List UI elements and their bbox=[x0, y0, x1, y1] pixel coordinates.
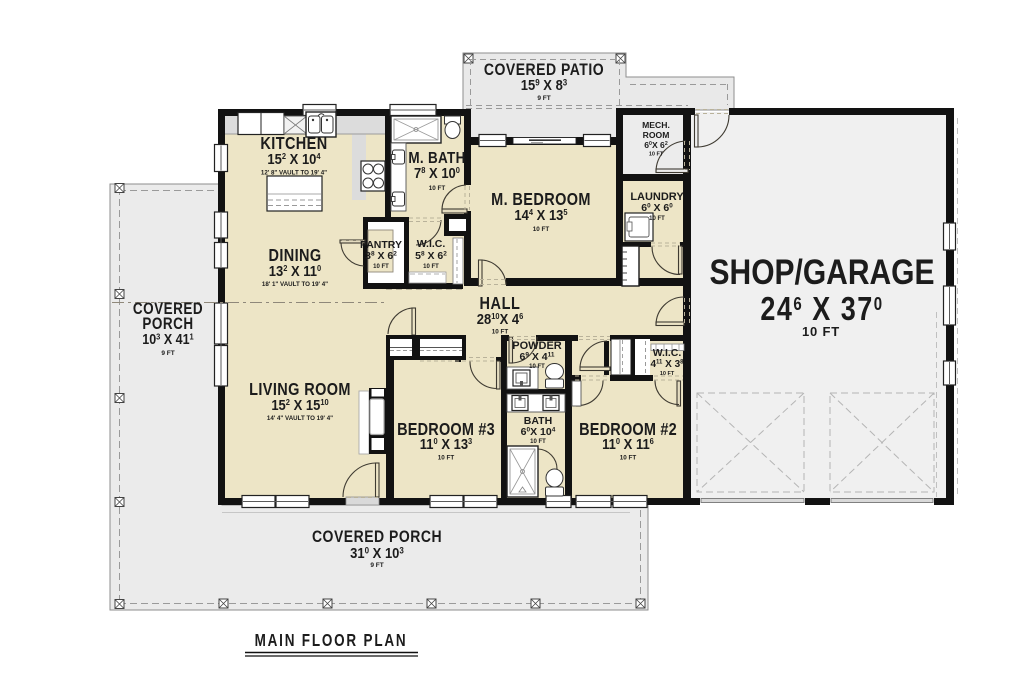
svg-text:10 FT: 10 FT bbox=[802, 324, 840, 339]
svg-text:144 X 135: 144 X 135 bbox=[514, 206, 568, 223]
svg-text:10 FT: 10 FT bbox=[649, 216, 665, 222]
svg-text:159 X 83: 159 X 83 bbox=[521, 76, 568, 93]
svg-text:MECH.: MECH. bbox=[642, 120, 670, 130]
svg-text:411 X 38: 411 X 38 bbox=[650, 359, 684, 370]
svg-text:10 FT: 10 FT bbox=[660, 371, 675, 377]
svg-text:2810X 46: 2810X 46 bbox=[477, 310, 524, 327]
svg-text:10 FT: 10 FT bbox=[529, 364, 545, 370]
svg-text:10 FT: 10 FT bbox=[373, 264, 389, 270]
svg-text:10 FT: 10 FT bbox=[620, 455, 637, 462]
svg-text:10 FT: 10 FT bbox=[438, 455, 455, 462]
svg-text:152 X 104: 152 X 104 bbox=[267, 150, 321, 167]
svg-text:60X 62: 60X 62 bbox=[644, 140, 668, 150]
svg-text:10 FT: 10 FT bbox=[429, 185, 446, 192]
svg-text:14' 4" VAULT TO 19' 4": 14' 4" VAULT TO 19' 4" bbox=[267, 415, 333, 422]
svg-text:310 X 103: 310 X 103 bbox=[350, 544, 404, 561]
svg-text:9 FT: 9 FT bbox=[537, 95, 550, 102]
svg-text:9 FT: 9 FT bbox=[161, 350, 174, 357]
svg-text:MAIN FLOOR PLAN: MAIN FLOOR PLAN bbox=[255, 631, 408, 650]
svg-text:103 X 411: 103 X 411 bbox=[142, 331, 194, 347]
svg-text:SHOP/GARAGE: SHOP/GARAGE bbox=[710, 252, 935, 292]
svg-text:60X 104: 60X 104 bbox=[521, 426, 556, 438]
svg-text:58 X 62: 58 X 62 bbox=[415, 250, 447, 262]
svg-text:132 X 110: 132 X 110 bbox=[269, 262, 322, 279]
svg-text:10 FT: 10 FT bbox=[533, 226, 550, 233]
svg-text:246 X 370: 246 X 370 bbox=[760, 292, 883, 328]
svg-text:18' 1" VAULT TO 19' 4": 18' 1" VAULT TO 19' 4" bbox=[262, 281, 328, 288]
svg-text:ROOM: ROOM bbox=[643, 130, 670, 140]
svg-text:9 FT: 9 FT bbox=[370, 562, 383, 569]
svg-text:10 FT: 10 FT bbox=[492, 329, 509, 336]
svg-text:10 FT: 10 FT bbox=[530, 439, 546, 445]
svg-text:12' 8" VAULT TO 19' 4": 12' 8" VAULT TO 19' 4" bbox=[261, 170, 327, 177]
svg-text:W.I.C.: W.I.C. bbox=[653, 347, 682, 359]
svg-text:110 X 133: 110 X 133 bbox=[420, 435, 473, 452]
svg-text:38 X 62: 38 X 62 bbox=[365, 250, 397, 262]
svg-text:78 X 100: 78 X 100 bbox=[414, 164, 460, 181]
svg-text:10 FT: 10 FT bbox=[649, 152, 664, 158]
svg-text:60 X 60: 60 X 60 bbox=[641, 202, 673, 214]
svg-text:W.I.C.: W.I.C. bbox=[417, 238, 446, 250]
svg-text:10 FT: 10 FT bbox=[423, 264, 439, 270]
svg-text:110 X 116: 110 X 116 bbox=[602, 435, 654, 452]
